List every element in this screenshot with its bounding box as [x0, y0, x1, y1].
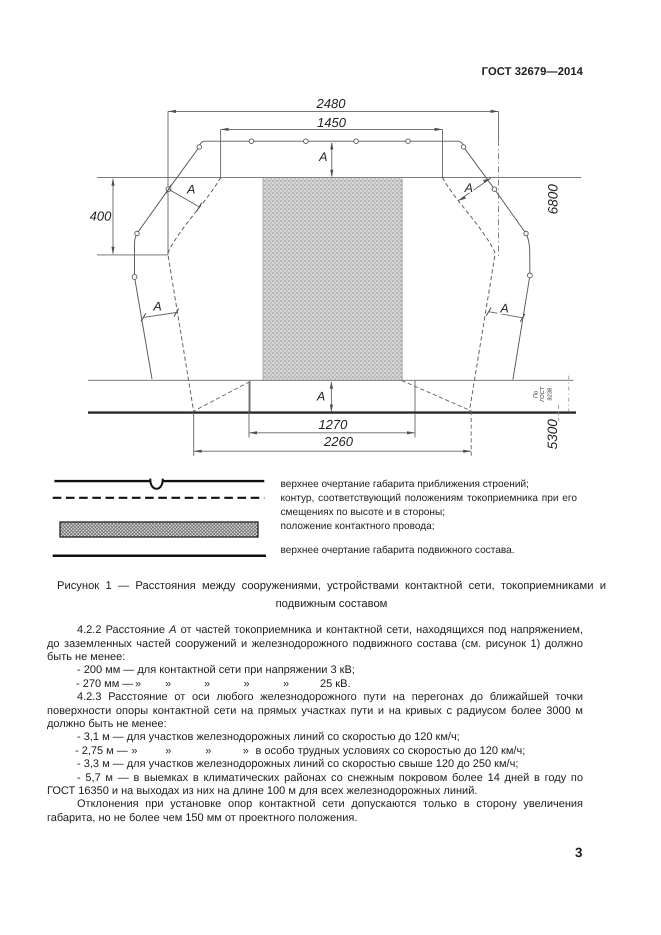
svg-text:По: По	[533, 390, 539, 398]
svg-text:A: A	[316, 390, 325, 404]
svg-text:6800: 6800	[546, 184, 561, 215]
svg-text:9238: 9238	[546, 387, 553, 401]
svg-text:A: A	[499, 302, 508, 316]
svg-text:1450: 1450	[317, 115, 347, 130]
svg-text:2480: 2480	[316, 96, 347, 111]
svg-text:ГОСТ: ГОСТ	[539, 386, 546, 401]
svg-text:A: A	[464, 181, 473, 195]
svg-text:5300: 5300	[545, 419, 560, 450]
svg-text:A: A	[186, 183, 195, 197]
svg-text:A: A	[152, 300, 161, 314]
svg-text:400: 400	[90, 209, 112, 224]
svg-text:A: A	[318, 150, 327, 164]
svg-text:1270: 1270	[318, 417, 348, 432]
svg-text:2260: 2260	[323, 434, 354, 449]
